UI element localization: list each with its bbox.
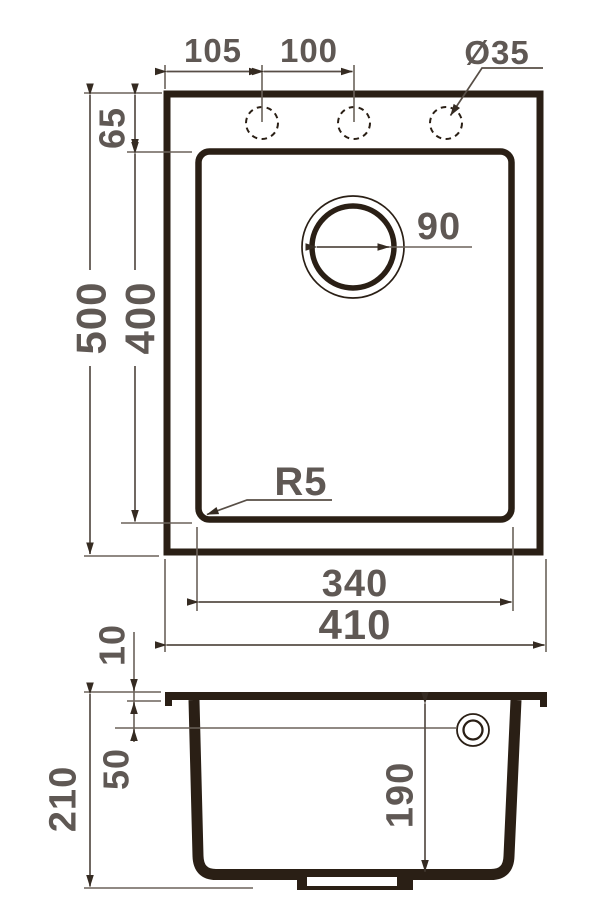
section-drain-slot [307,877,397,886]
dim-label-500: 500 [68,281,115,354]
dim-label-10: 10 [92,624,133,666]
dim-label-90: 90 [417,206,461,248]
drawing-canvas: 105 100 Ø35 65 500 400 90 [0,0,601,913]
sink-technical-drawing: 105 100 Ø35 65 500 400 90 [0,0,601,913]
dim-label-r5: R5 [274,460,327,504]
dim-label-o35: Ø35 [464,34,529,71]
dim-label-190: 190 [379,762,421,828]
dim-label-50: 50 [96,748,137,790]
dim-label-65: 65 [92,107,133,149]
section-rim-left-cap [165,692,172,706]
dim-label-210: 210 [42,766,84,832]
dim-label-410: 410 [318,601,391,648]
dim-label-340: 340 [322,563,388,605]
dim-label-100: 100 [280,32,338,69]
dim-label-400: 400 [117,281,164,354]
section-rim [165,692,547,700]
section-rim-right-cap [540,692,547,707]
dim-label-105: 105 [184,32,242,69]
